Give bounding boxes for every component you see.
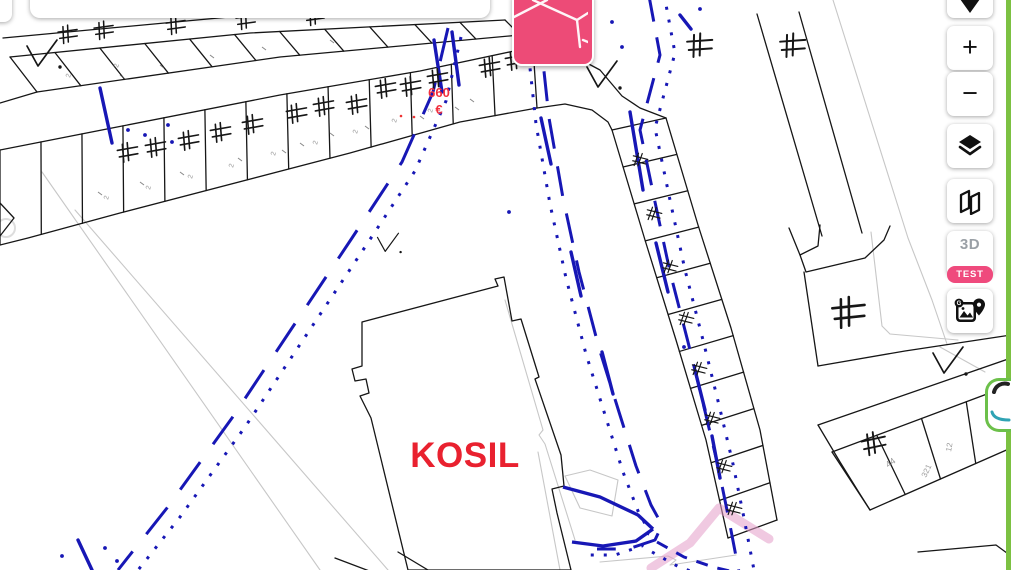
svg-text:44: 44 — [883, 456, 897, 470]
svg-text:2: 2 — [427, 108, 435, 114]
map-viewer: 222222222224432112660€KOSIL + − — [0, 0, 1011, 570]
layers-button[interactable] — [947, 124, 993, 168]
geolocate-button[interactable] — [947, 0, 993, 18]
svg-text:G: G — [957, 301, 962, 307]
map-canvas[interactable]: 222222222224432112660€KOSIL — [0, 0, 1011, 570]
svg-text:2: 2 — [228, 163, 236, 169]
zoom-in-button[interactable]: + — [947, 26, 993, 70]
compare-maps-icon — [957, 187, 983, 215]
zoom-out-button[interactable]: − — [947, 72, 993, 116]
test-badge: TEST — [947, 266, 993, 283]
parcel-lines — [0, 12, 1011, 570]
svg-text:2: 2 — [391, 118, 399, 124]
svg-text:321: 321 — [920, 462, 934, 478]
svg-text:12: 12 — [944, 441, 955, 452]
svg-text:2: 2 — [145, 185, 153, 191]
map-labels: 222222222224432112660€KOSIL — [65, 63, 954, 479]
compare-maps-button[interactable] — [947, 179, 993, 223]
price-label: 660 — [428, 85, 450, 100]
threed-button[interactable]: 3D TEST — [947, 231, 993, 277]
streetview-button[interactable]: G — [947, 289, 993, 333]
building-name-label: KOSIL — [410, 436, 519, 475]
price-currency-label: € — [435, 102, 442, 117]
svg-text:2: 2 — [312, 140, 320, 146]
faint-survey-lines — [0, 0, 985, 570]
minimap-button[interactable] — [512, 0, 594, 66]
partial-logo-button[interactable] — [985, 378, 1011, 432]
streetview-icon: G — [954, 296, 986, 326]
svg-text:2: 2 — [187, 174, 195, 180]
utility-lines — [60, 0, 754, 570]
corner-panel-fragment — [0, 0, 12, 22]
zoom-out-label: − — [962, 80, 978, 107]
svg-text:2: 2 — [103, 195, 111, 201]
layers-icon — [957, 133, 983, 159]
search-bar[interactable] — [30, 0, 490, 18]
side-panel-edge — [1006, 0, 1011, 570]
threed-label: 3D — [960, 236, 980, 253]
svg-text:2: 2 — [352, 129, 360, 135]
cadastral-linework: 222222222224432112660€KOSIL — [0, 0, 1011, 570]
partial-logo-icon — [988, 381, 1011, 425]
svg-text:2: 2 — [113, 63, 121, 69]
minimap-preview-icon — [514, 0, 588, 60]
geolocate-icon — [947, 0, 993, 18]
zoom-in-label: + — [962, 34, 978, 61]
svg-text:2: 2 — [270, 151, 278, 157]
